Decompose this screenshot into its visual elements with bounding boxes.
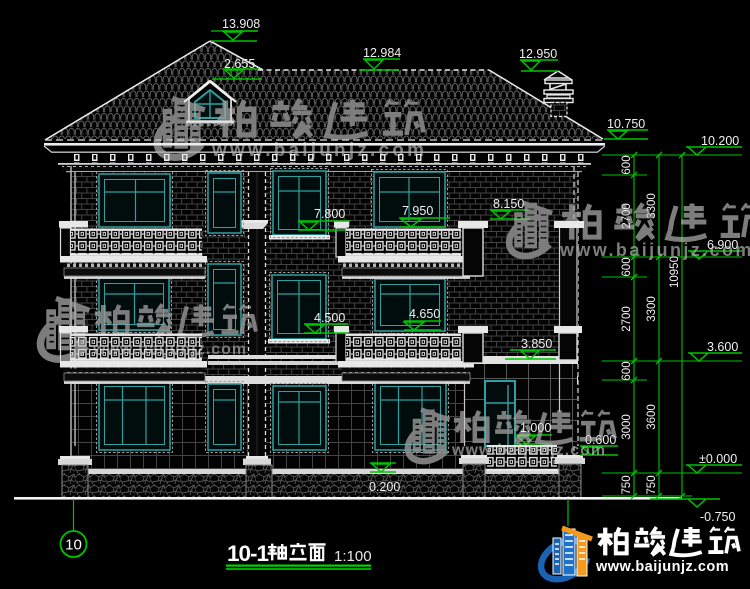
svg-text:7.800: 7.800 [314,207,345,221]
svg-text:4.650: 4.650 [409,307,440,321]
svg-text:10-1: 10-1 [227,541,269,566]
svg-text:2.655: 2.655 [224,57,255,71]
svg-text:www.baijunjz.com: www.baijunjz.com [559,240,750,260]
svg-text:www.baijunjz.com: www.baijunjz.com [451,442,606,459]
svg-text:10.200: 10.200 [701,134,739,148]
svg-text:600: 600 [621,155,633,174]
svg-text:3300: 3300 [646,296,658,322]
svg-text:www.baijunjz.com: www.baijunjz.com [92,341,247,358]
svg-text:10.750: 10.750 [607,117,645,131]
svg-text:10: 10 [65,537,82,554]
svg-text:750: 750 [646,475,658,494]
svg-text:10950: 10950 [669,256,681,288]
svg-text:0.200: 0.200 [369,480,400,494]
svg-text:750: 750 [621,475,633,494]
svg-text:600: 600 [621,257,633,276]
svg-text:±0.000: ±0.000 [699,452,737,466]
svg-text:4.500: 4.500 [314,311,345,325]
svg-text:www.baijunjz.com: www.baijunjz.com [595,559,729,575]
svg-text:www.baijunjz.com: www.baijunjz.com [211,140,427,161]
svg-text:12.950: 12.950 [519,47,557,61]
svg-text:3600: 3600 [646,404,658,430]
svg-text:600: 600 [621,361,633,380]
svg-text:-0.750: -0.750 [700,510,735,524]
svg-text:12.984: 12.984 [363,46,401,60]
svg-text:13.908: 13.908 [222,17,260,31]
svg-text:3.600: 3.600 [707,340,738,354]
svg-text:3000: 3000 [621,414,633,440]
svg-text:7.950: 7.950 [402,204,433,218]
svg-text:3.850: 3.850 [521,337,552,351]
svg-text:1:100: 1:100 [334,548,372,565]
svg-text:8.150: 8.150 [493,197,524,211]
svg-text:2700: 2700 [621,306,633,332]
